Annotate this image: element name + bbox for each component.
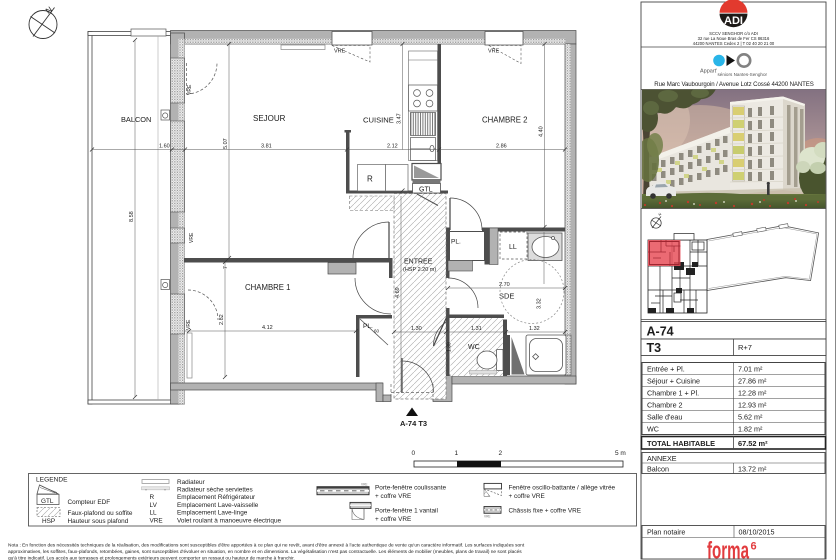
- svg-text:WC: WC: [468, 344, 480, 351]
- svg-text:WC: WC: [647, 425, 659, 434]
- svg-text:Emplacement Réfrigérateur: Emplacement Réfrigérateur: [177, 494, 256, 501]
- svg-text:Hauteur sous plafond: Hauteur sous plafond: [68, 518, 129, 525]
- svg-text:ANNEXE: ANNEXE: [647, 454, 677, 463]
- svg-text:Emplacement Lave-vaisselle: Emplacement Lave-vaisselle: [177, 502, 259, 509]
- svg-text:Porte-fenêtre coulissante: Porte-fenêtre coulissante: [375, 485, 446, 492]
- svg-text:Faux-plafond ou soffite: Faux-plafond ou soffite: [68, 510, 133, 517]
- svg-text:CHAMBRE 1: CHAMBRE 1: [245, 283, 291, 292]
- svg-text:Châssis fixe + coffre VRE: Châssis fixe + coffre VRE: [509, 508, 582, 515]
- svg-text:67.52 m²: 67.52 m²: [738, 439, 768, 448]
- svg-text:Séjour + Cuisine: Séjour + Cuisine: [647, 377, 700, 386]
- svg-text:1.32: 1.32: [529, 326, 540, 332]
- svg-text:6: 6: [751, 541, 757, 553]
- svg-text:VRE: VRE: [361, 483, 368, 487]
- svg-text:5.62 m²: 5.62 m²: [738, 413, 763, 422]
- svg-text:1: 1: [455, 450, 459, 457]
- svg-text:12.93 m²: 12.93 m²: [738, 401, 767, 410]
- svg-text:Chambre 2: Chambre 2: [647, 401, 683, 410]
- svg-text:5 m: 5 m: [615, 450, 626, 457]
- svg-text:7.01 m²: 7.01 m²: [738, 365, 763, 374]
- svg-text:3.32: 3.32: [537, 298, 543, 309]
- svg-text:13.72 m²: 13.72 m²: [738, 465, 767, 474]
- svg-text:+ coffre VRE: + coffre VRE: [375, 516, 411, 523]
- svg-text:7: 7: [223, 266, 229, 269]
- svg-text:Radiateur: Radiateur: [177, 479, 206, 486]
- svg-text:VRE: VRE: [334, 49, 346, 55]
- svg-text:+ coffre VRE: + coffre VRE: [375, 493, 411, 500]
- svg-text:Nota : En fonction des nécessi: Nota : En fonction des nécessités techni…: [8, 543, 525, 549]
- svg-text:approximatives, les soffites,: approximatives, les soffites, faux-plafo…: [8, 549, 522, 555]
- svg-text:+ coffre VRE: + coffre VRE: [509, 493, 545, 500]
- svg-text:Emplacement Lave-linge: Emplacement Lave-linge: [177, 510, 248, 517]
- svg-text:LL: LL: [150, 510, 158, 517]
- svg-text:5.07: 5.07: [223, 138, 229, 149]
- svg-text:VRE: VRE: [189, 232, 195, 243]
- svg-text:qu'à titre indicatif. Les accè: qu'à titre indicatif. Les accès aux terr…: [8, 556, 295, 560]
- svg-text:GTL: GTL: [419, 187, 433, 194]
- svg-text:08/10/2015: 08/10/2015: [739, 528, 775, 537]
- svg-text:1.31: 1.31: [471, 326, 482, 332]
- svg-text:3.47: 3.47: [397, 113, 403, 124]
- svg-text:SDE: SDE: [499, 292, 514, 301]
- svg-text:Salle d'eau: Salle d'eau: [647, 413, 682, 422]
- svg-text:4.69: 4.69: [395, 287, 401, 298]
- svg-text:ADI: ADI: [724, 15, 743, 27]
- svg-text:Porte-fenêtre 1 vantail: Porte-fenêtre 1 vantail: [375, 508, 438, 515]
- svg-text:8.58: 8.58: [129, 211, 135, 222]
- svg-text:27.86 m²: 27.86 m²: [738, 377, 767, 386]
- svg-text:LL: LL: [509, 244, 517, 251]
- svg-text:VRE: VRE: [187, 84, 193, 95]
- svg-text:Rue Marc Vaubourgoin / Avenue: Rue Marc Vaubourgoin / Avenue Lotz Cossé…: [654, 81, 813, 88]
- svg-text:2.86: 2.86: [496, 144, 507, 150]
- svg-text:PL.: PL.: [451, 239, 461, 246]
- svg-text:4.40: 4.40: [539, 126, 545, 137]
- svg-text:LV: LV: [150, 502, 158, 509]
- svg-text:0: 0: [412, 450, 416, 457]
- svg-text:TOTAL HABITABLE: TOTAL HABITABLE: [647, 439, 715, 448]
- svg-text:CUISINE: CUISINE: [363, 116, 394, 125]
- svg-text:Appart': Appart': [700, 69, 717, 75]
- svg-text:12.28 m²: 12.28 m²: [738, 389, 767, 398]
- svg-text:A-74: A-74: [647, 325, 674, 339]
- svg-text:VRE: VRE: [484, 515, 491, 519]
- svg-text:(HSP 2.20 m): (HSP 2.20 m): [403, 267, 436, 273]
- svg-text:T3: T3: [647, 341, 662, 355]
- svg-text:2.12: 2.12: [387, 144, 398, 150]
- svg-text:Chambre 1 + Pl.: Chambre 1 + Pl.: [647, 389, 699, 398]
- svg-text:VRE: VRE: [488, 49, 500, 55]
- svg-text:1.30: 1.30: [411, 326, 422, 332]
- svg-text:1.82 m²: 1.82 m²: [738, 425, 763, 434]
- svg-text:Volet roulant à manoeuvre élec: Volet roulant à manoeuvre électrique: [177, 517, 282, 524]
- svg-text:GTL: GTL: [41, 498, 54, 505]
- svg-text:R: R: [367, 175, 373, 184]
- svg-text:Compteur EDF: Compteur EDF: [68, 499, 111, 506]
- svg-text:Balcon: Balcon: [647, 465, 669, 474]
- svg-text:Entrée + Pl.: Entrée + Pl.: [647, 365, 685, 374]
- svg-text:SEJOUR: SEJOUR: [253, 114, 286, 123]
- svg-text:R+7: R+7: [738, 343, 752, 352]
- svg-text:Fenêtre oscillo-battante / all: Fenêtre oscillo-battante / allège vitrée: [509, 485, 616, 492]
- svg-text:60: 60: [374, 329, 380, 334]
- svg-text:2.70: 2.70: [499, 282, 510, 288]
- svg-text:4.12: 4.12: [262, 325, 273, 331]
- svg-text:forma: forma: [707, 538, 750, 560]
- svg-text:BALCON: BALCON: [121, 115, 151, 124]
- svg-text:CHAMBRE 2: CHAMBRE 2: [482, 116, 528, 125]
- svg-text:Radiateur sèche serviettes: Radiateur sèche serviettes: [177, 487, 253, 494]
- svg-text:HSP: HSP: [42, 518, 55, 525]
- svg-text:2: 2: [499, 450, 503, 457]
- svg-text:VRE: VRE: [150, 517, 163, 524]
- svg-text:ENTREE: ENTREE: [404, 259, 433, 266]
- svg-text:R: R: [150, 494, 155, 501]
- svg-text:Plan notaire: Plan notaire: [647, 528, 685, 537]
- svg-text:2.82: 2.82: [219, 314, 225, 325]
- svg-text:3.81: 3.81: [261, 144, 272, 150]
- svg-text:44200 NANTES Cedex 2 | T 02 40: 44200 NANTES Cedex 2 | T 02 40 20 21 00: [693, 41, 775, 46]
- svg-text:LEGENDE: LEGENDE: [36, 477, 68, 484]
- svg-text:PL.: PL.: [363, 323, 373, 330]
- svg-text:1.60: 1.60: [159, 144, 170, 150]
- svg-text:A-74 T3: A-74 T3: [400, 419, 427, 428]
- svg-text:VRE: VRE: [186, 319, 192, 330]
- svg-text:séniors Nantes-Senghor: séniors Nantes-Senghor: [718, 72, 768, 77]
- svg-text:1.39: 1.39: [447, 342, 453, 352]
